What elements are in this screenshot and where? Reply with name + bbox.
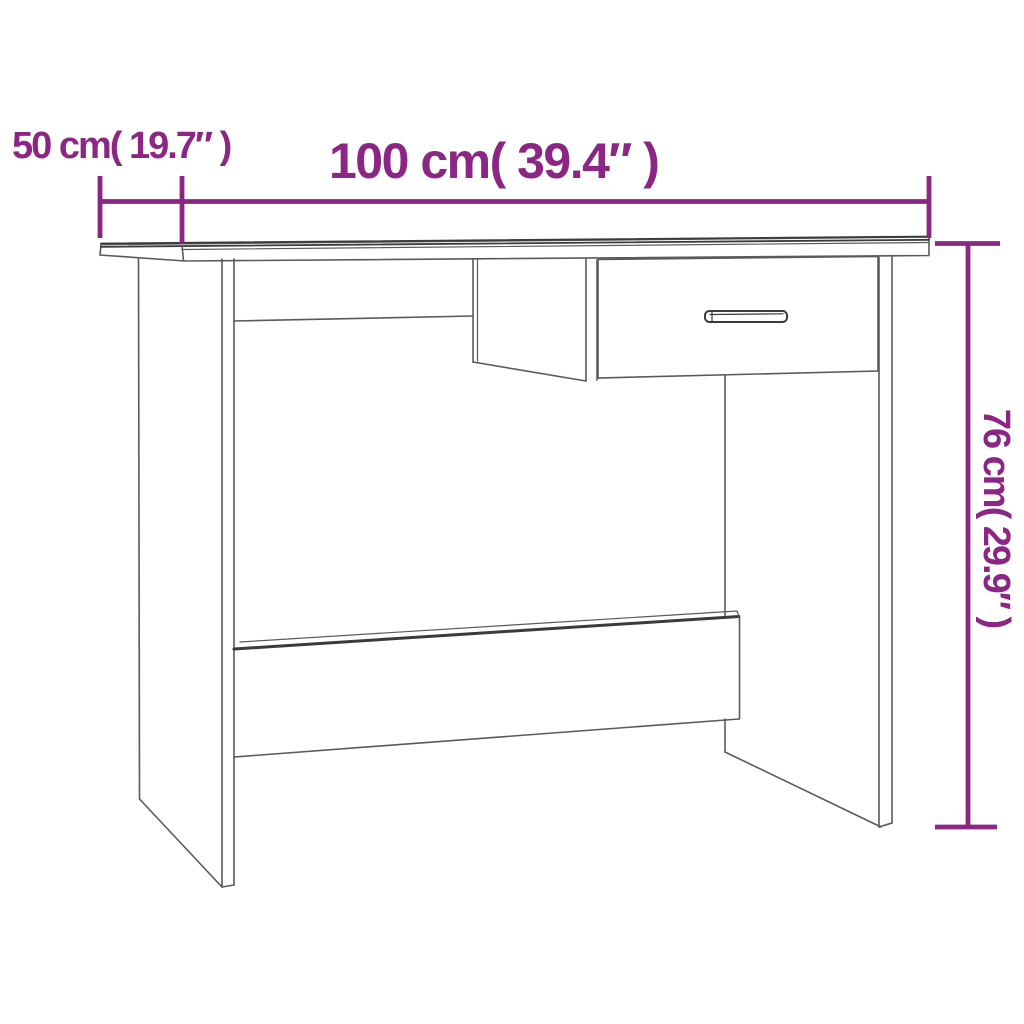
depth-dimension-line (100, 176, 182, 244)
partition-bottom-edge (473, 362, 586, 381)
center-partition (473, 259, 597, 381)
stretcher-top-front-edge-dark (234, 617, 739, 650)
drawer-handle (705, 311, 787, 322)
knee-space-apron (234, 316, 473, 321)
right-leg-foot (879, 823, 892, 827)
drawer-handle-inner-line (710, 314, 783, 315)
desk-outline (100, 237, 929, 888)
left-leg-bottom-diagonal (140, 799, 223, 887)
left-leg-foot (222, 885, 234, 887)
stretcher-top-back-edge (240, 611, 737, 642)
stretcher-bottom-edge (234, 719, 739, 757)
back-stretcher (234, 611, 740, 757)
left-leg (139, 258, 235, 887)
right-leg-bottom-diagonal (725, 752, 881, 827)
drawer-handle-bar (705, 311, 787, 322)
depth-dimension-label: 50 cm( 19.7″ ) (12, 127, 230, 165)
drawer (598, 257, 878, 379)
width-dimension-label: 100 cm( 39.4″ ) (329, 136, 658, 186)
height-dimension-label: 76 cm( 29.9″ ) (977, 409, 1015, 627)
dimension-diagram: 50 cm( 19.7″ ) 100 cm( 39.4″ ) 76 cm( 29… (0, 0, 1024, 1024)
left-leg-outer-edge (139, 258, 140, 799)
